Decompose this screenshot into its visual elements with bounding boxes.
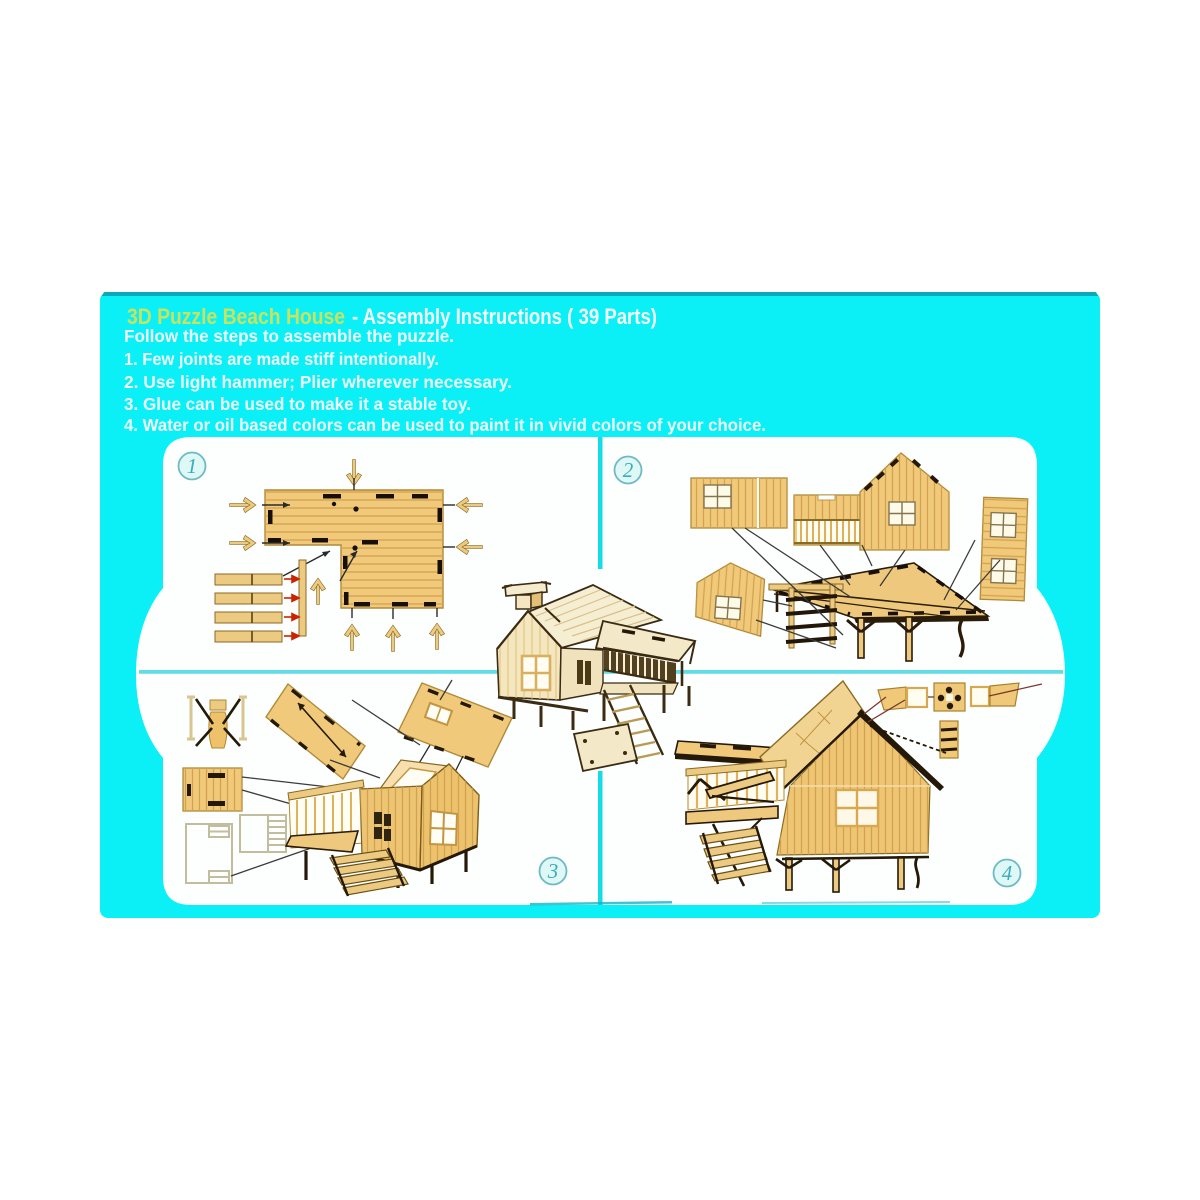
svg-text:Follow the steps to assemble t: Follow the steps to assemble the puzzle. — [124, 326, 454, 346]
svg-text:4. Water or oil based colors: 4. Water or oil based colors can be used… — [124, 415, 766, 435]
svg-text:2. Use light hammer; Plier wh: 2. Use light hammer; Plier wherever nece… — [124, 372, 512, 392]
svg-text:1. Few joints are made stiff: 1. Few joints are made stiff intentional… — [124, 349, 439, 369]
svg-text:1: 1 — [187, 454, 198, 478]
svg-text:3: 3 — [547, 859, 559, 883]
svg-text:4: 4 — [1002, 861, 1013, 885]
svg-text:3. Glue can be used to make i: 3. Glue can be used to make it a stable … — [124, 394, 471, 414]
svg-text:2: 2 — [623, 458, 634, 482]
